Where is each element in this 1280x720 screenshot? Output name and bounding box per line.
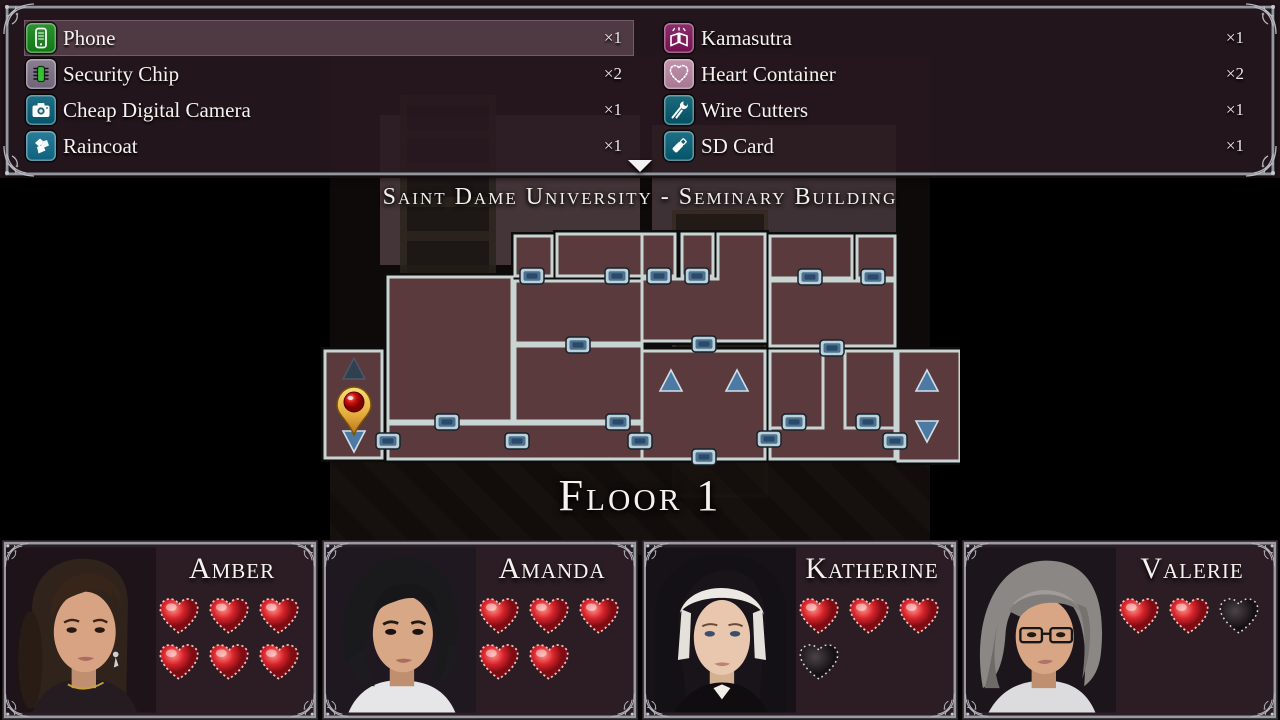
- game-screen: Phone ×1 Security Chip ×2 Cheap Digital …: [0, 0, 1280, 720]
- heart-filled-icon: [157, 642, 201, 682]
- heart-filled-icon: [847, 596, 891, 636]
- portrait-amber: [6, 544, 156, 716]
- door-marker: [606, 414, 630, 430]
- heart-empty-icon: [1217, 596, 1261, 636]
- heart-filled-icon: [207, 642, 251, 682]
- heart-filled-icon: [897, 596, 941, 636]
- heart-filled-icon: [207, 596, 251, 636]
- heart-filled-icon: [1167, 596, 1211, 636]
- character-name: Amber: [154, 552, 310, 586]
- phone-icon: [26, 23, 56, 53]
- inventory-item-row[interactable]: Kamasutra ×1: [662, 20, 1256, 56]
- inventory-item-row[interactable]: Security Chip ×2: [24, 56, 634, 92]
- door-marker: [628, 433, 652, 449]
- inventory-item-row[interactable]: Phone ×1: [24, 20, 634, 56]
- item-count: ×1: [1226, 100, 1250, 120]
- affection-hearts: [1117, 596, 1267, 636]
- item-label: Raincoat: [63, 134, 138, 159]
- character-card-valerie[interactable]: Valerie: [962, 540, 1278, 720]
- map-title: Saint Dame University - Seminary Buildin…: [0, 184, 1280, 211]
- item-count: ×1: [1226, 136, 1250, 156]
- heart-filled-icon: [797, 596, 841, 636]
- item-label: Phone: [63, 26, 116, 51]
- item-label: Heart Container: [701, 62, 836, 87]
- item-count: ×1: [1226, 28, 1250, 48]
- item-label: SD Card: [701, 134, 774, 159]
- kamasutra-book-icon: [664, 23, 694, 53]
- affection-hearts: [477, 596, 627, 682]
- portrait-katherine: [646, 544, 796, 716]
- room-center-west-lower[interactable]: [515, 346, 642, 421]
- affection-hearts: [797, 596, 947, 682]
- item-count: ×1: [604, 28, 628, 48]
- door-marker: [647, 268, 671, 284]
- portrait-valerie: [966, 544, 1116, 716]
- door-marker: [861, 269, 885, 285]
- heart-filled-icon: [527, 642, 571, 682]
- camera-icon: [26, 95, 56, 125]
- character-name: Amanda: [474, 552, 630, 586]
- door-marker: [505, 433, 529, 449]
- item-count: ×1: [604, 136, 628, 156]
- heart-filled-icon: [477, 642, 521, 682]
- heart-filled-icon: [157, 596, 201, 636]
- portrait-amanda: [326, 544, 476, 716]
- door-marker: [798, 269, 822, 285]
- floor-label: Floor 1: [0, 470, 1280, 521]
- item-label: Kamasutra: [701, 26, 792, 51]
- item-count: ×2: [604, 64, 628, 84]
- wire-cutters-icon: [664, 95, 694, 125]
- door-marker: [520, 268, 544, 284]
- character-name: Valerie: [1114, 552, 1270, 586]
- item-count: ×1: [604, 100, 628, 120]
- inventory-column-left: Phone ×1 Security Chip ×2 Cheap Digital …: [24, 20, 634, 164]
- item-label: Cheap Digital Camera: [63, 98, 251, 123]
- heart-empty-icon: [797, 642, 841, 682]
- stairwell-room-center[interactable]: [642, 351, 765, 459]
- door-marker: [856, 414, 880, 430]
- heart-filled-icon: [527, 596, 571, 636]
- door-marker: [692, 449, 716, 465]
- character-card-katherine[interactable]: Katherine: [642, 540, 958, 720]
- heart-filled-icon: [257, 642, 301, 682]
- affection-hearts: [157, 596, 307, 682]
- inventory-item-row[interactable]: Cheap Digital Camera ×1: [24, 92, 634, 128]
- item-label: Wire Cutters: [701, 98, 808, 123]
- heart-filled-icon: [577, 596, 621, 636]
- door-marker: [376, 433, 400, 449]
- door-marker: [605, 268, 629, 284]
- security-chip-icon: [26, 59, 56, 89]
- character-card-amber[interactable]: Amber: [2, 540, 318, 720]
- large-room-west[interactable]: [388, 277, 512, 421]
- door-marker: [566, 337, 590, 353]
- character-card-amanda[interactable]: Amanda: [322, 540, 638, 720]
- door-marker: [692, 336, 716, 352]
- inventory-column-right: Kamasutra ×1 Heart Container ×2 Wire Cut…: [662, 20, 1256, 164]
- inventory-item-row[interactable]: Raincoat ×1: [24, 128, 634, 164]
- door-marker: [782, 414, 806, 430]
- item-count: ×2: [1226, 64, 1250, 84]
- inventory-item-row[interactable]: SD Card ×1: [662, 128, 1256, 164]
- door-marker: [757, 431, 781, 447]
- heart-filled-icon: [257, 596, 301, 636]
- floor-map: [320, 226, 960, 468]
- sd-card-icon: [664, 131, 694, 161]
- raincoat-icon: [26, 131, 56, 161]
- inventory-item-row[interactable]: Heart Container ×2: [662, 56, 1256, 92]
- scroll-down-icon[interactable]: [628, 160, 652, 172]
- room-east-upper[interactable]: [770, 281, 895, 346]
- character-name: Katherine: [794, 552, 950, 586]
- heart-filled-icon: [477, 596, 521, 636]
- door-marker: [883, 433, 907, 449]
- inventory-panel: Phone ×1 Security Chip ×2 Cheap Digital …: [0, 0, 1280, 178]
- room-center-west-upper[interactable]: [515, 281, 642, 343]
- character-cards: Amber Amanda Katherine Valerie: [0, 540, 1280, 720]
- heart-container-icon: [664, 59, 694, 89]
- door-marker: [820, 340, 844, 356]
- item-label: Security Chip: [63, 62, 179, 87]
- inventory-item-row[interactable]: Wire Cutters ×1: [662, 92, 1256, 128]
- door-marker: [435, 414, 459, 430]
- heart-filled-icon: [1117, 596, 1161, 636]
- door-marker: [685, 268, 709, 284]
